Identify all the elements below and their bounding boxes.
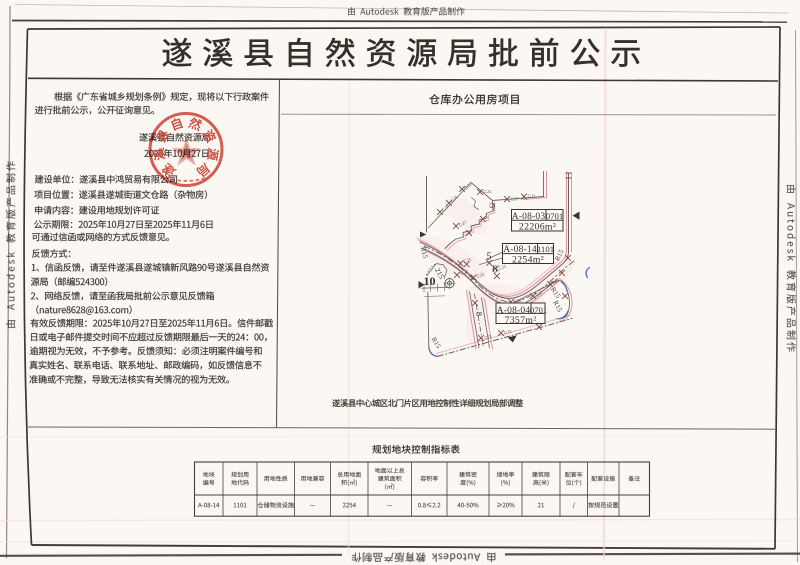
svg-text:6: 6 <box>492 265 497 276</box>
svg-text:10: 10 <box>424 274 436 288</box>
svg-text:2254m²: 2254m² <box>512 254 544 265</box>
svg-text:1101: 1101 <box>537 244 554 254</box>
svg-text:0701: 0701 <box>546 211 564 221</box>
svg-text:CJ1: CJ1 <box>528 194 536 199</box>
svg-text:0701: 0701 <box>530 305 548 315</box>
svg-text:CJ7: CJ7 <box>511 197 519 202</box>
svg-text:5: 5 <box>487 252 492 263</box>
svg-text:5: 5 <box>487 204 496 209</box>
svg-text:7357m²: 7357m² <box>505 315 537 326</box>
svg-text:A-08-03: A-08-03 <box>512 212 546 222</box>
svg-text:CJ1: CJ1 <box>484 189 492 194</box>
svg-text:22206m²: 22206m² <box>519 222 556 233</box>
